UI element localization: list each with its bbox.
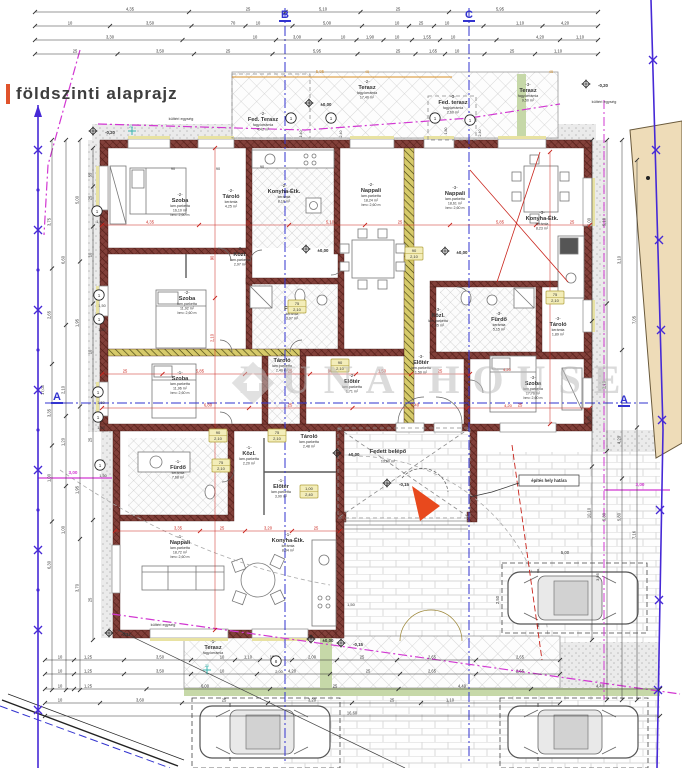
room-material: kerámia xyxy=(493,323,506,327)
dim-label: 25 xyxy=(220,525,225,530)
room-unit-number: -2- xyxy=(368,182,374,187)
dim-label: 25 xyxy=(87,597,92,602)
porch-pillar-left xyxy=(336,512,346,522)
dim-label: kültéri egység xyxy=(151,622,176,627)
dim-label: 2,10 xyxy=(209,333,214,342)
room-material: kerámia xyxy=(536,222,549,226)
room-area: 1,89 m² xyxy=(552,333,565,337)
title-text: földszinti alaprajz xyxy=(16,84,178,104)
section-marker-letter: A xyxy=(620,394,628,406)
dim-label: 16,60 xyxy=(347,710,358,715)
dim-label: 25 xyxy=(390,697,395,702)
gravel-bottom-right xyxy=(560,638,660,688)
room-unit-number: -2- xyxy=(237,246,243,251)
dim-label: építés hely határa xyxy=(531,478,567,483)
room-height: bm= 2,60 m xyxy=(523,396,542,400)
dim-label: 1,90 xyxy=(366,34,375,39)
window-tag-number: 1 xyxy=(290,116,293,121)
room-unit-number: -1- xyxy=(246,445,252,450)
door-height: 2,40 xyxy=(305,492,314,497)
dim-label: 25 xyxy=(87,437,92,442)
window-tag-number: 1 xyxy=(96,209,99,214)
room-material: lam.parketta xyxy=(170,546,190,550)
dim-label: 1,00 xyxy=(46,473,51,482)
dim-label: 3,30 xyxy=(106,34,115,39)
dim-label: 1,10 xyxy=(244,654,253,659)
dim-label: 1,00 xyxy=(60,525,65,534)
dim-label: 2,10 xyxy=(601,380,606,389)
door-height: 2,10 xyxy=(551,298,560,303)
boundary-point xyxy=(646,176,650,180)
dim-label: 1,55 xyxy=(423,34,432,39)
dim-label: kültéri egység xyxy=(169,116,194,121)
dim-label: 10 xyxy=(395,34,400,39)
room-area: 9,50 m² xyxy=(522,99,535,103)
room-material: lam.parketta xyxy=(523,387,543,391)
room-unit-number: -2- xyxy=(279,352,285,357)
room-material: fagy.kerámia xyxy=(253,123,273,127)
dim-label: 3,95 xyxy=(595,572,600,581)
dim-label: 10 xyxy=(220,668,225,673)
room-name: Fedett belépő xyxy=(370,449,407,455)
window-tag-number: 1 xyxy=(434,116,437,121)
room-area: 1,71 m² xyxy=(346,390,359,394)
room-unit-number: -3- xyxy=(450,94,456,99)
window-tag-number: 1 xyxy=(99,463,102,468)
dim-label: 25 xyxy=(314,525,319,530)
dim-label: 6,80 xyxy=(204,402,213,407)
room-unit-number: -3- xyxy=(496,311,502,316)
dim-label: 1,95 xyxy=(586,415,591,424)
room-material: lam.parketta xyxy=(239,457,259,461)
dim-label: 6,40 xyxy=(411,402,420,407)
room-material: lam.parketta xyxy=(177,302,197,306)
dim-label: 5,95 xyxy=(313,48,322,53)
room-material: lam.parketta xyxy=(272,364,292,368)
elevation-value: -0,15 xyxy=(353,642,364,647)
room-name: Konyha-Étk. xyxy=(268,187,301,195)
dim-label: 2,65 xyxy=(46,310,51,319)
dim-label: 10 xyxy=(87,252,92,257)
room-unit-number: -1- xyxy=(210,639,216,644)
boundary-magenta-topleft xyxy=(44,50,80,235)
title-accent-bar xyxy=(6,84,10,104)
room-area: 16,10 m² xyxy=(173,209,188,213)
dim-label: 25 xyxy=(419,20,424,25)
dim-label: 70 xyxy=(231,20,236,25)
dim-label: 5,80 xyxy=(601,512,606,521)
fence-left xyxy=(34,105,42,768)
window-tag-number: 1 xyxy=(98,317,101,322)
room-area: 8,10 m² xyxy=(278,200,291,204)
dim-label: 20 xyxy=(205,664,209,668)
dim-label: 25 xyxy=(398,219,403,224)
dim-label: 4,40 xyxy=(596,683,605,688)
dim-label: 10 xyxy=(253,34,258,39)
section-marker-letter: C xyxy=(465,9,473,21)
dim-label: 10,10 xyxy=(586,507,591,518)
dim-label: 25 xyxy=(396,6,401,11)
dim-label: 10 xyxy=(58,697,63,702)
room-unit-number: -2- xyxy=(260,111,266,116)
room-unit-number: -1- xyxy=(175,459,181,464)
dim-label: 5,10 xyxy=(319,6,328,11)
window-tag-number: 1 xyxy=(97,390,100,395)
room-area: 4,42 m² xyxy=(257,128,270,132)
dim-label: 25 xyxy=(396,48,401,53)
room-height: bm= 2,60 m xyxy=(361,203,380,207)
window-tag-dim: 1,50 xyxy=(96,220,103,224)
dim-label: 5,10 xyxy=(326,219,335,224)
window-tag-number: 1 xyxy=(330,116,333,121)
room-material: kerámia xyxy=(172,471,185,475)
dim-label: 25 xyxy=(570,219,575,224)
room-material: lam.parketta xyxy=(361,194,381,198)
dim-label: 25 xyxy=(360,654,365,659)
room-material: lam.parketta xyxy=(230,258,250,262)
door-width: 75 xyxy=(553,292,558,297)
dim-label: 7,16 xyxy=(631,530,636,539)
dim-label: 1,80 xyxy=(444,128,448,135)
dim-label: 45 xyxy=(365,69,370,74)
dim-label: 6,30 xyxy=(46,560,51,569)
party-wall xyxy=(404,148,414,431)
window-tag-number: 1 xyxy=(97,415,100,420)
room-material: lam.parketta xyxy=(271,490,291,494)
dim-label: 3,00 xyxy=(636,482,645,487)
dim-label: 3,10 xyxy=(616,255,621,264)
room-height: bm= 2,60 m xyxy=(170,555,189,559)
terrace-bottom xyxy=(184,636,560,688)
room-material: fagy.kerámia xyxy=(443,106,463,110)
door-width: 75 xyxy=(295,301,300,306)
elevation-value: ±0,00 xyxy=(323,638,335,643)
room-unit-number: -3- xyxy=(435,307,441,312)
floor-plan-drawing: 4,35255,10255,95103,5070105,001025101,10… xyxy=(0,0,682,768)
dim-label: 25 xyxy=(366,668,371,673)
dim-label: 10 xyxy=(58,683,63,688)
room-material: lam.parketta xyxy=(299,440,319,444)
window-tag-dim: 1,50 xyxy=(97,426,104,430)
dim-label: 3,00 xyxy=(69,470,78,475)
dim-label: 90 xyxy=(260,165,264,169)
dim-label: 55 xyxy=(87,172,92,177)
dim-label: 25 xyxy=(438,368,443,373)
dim-label: 25 xyxy=(518,402,523,407)
elevation-value: ±0,00 xyxy=(349,452,361,457)
street-edge xyxy=(0,694,184,768)
dim-label: 2,00 xyxy=(308,654,317,659)
room-unit-number: -3- xyxy=(555,316,561,321)
dim-label: 5,80 xyxy=(616,512,621,521)
dim-label: 1,25 xyxy=(84,654,93,659)
elevation-value: -0,15 xyxy=(399,482,410,487)
dim-label: 3,50 xyxy=(156,48,165,53)
room-unit-number: -2- xyxy=(184,290,190,295)
room-name: Konyha-Étk. xyxy=(272,536,305,544)
elevation-value: ±0,00 xyxy=(457,250,469,255)
dim-label: 7,05 xyxy=(631,315,636,324)
room-area: 17,76 m² xyxy=(526,392,541,396)
dim-label: 10 xyxy=(341,34,346,39)
room-name: Konyha-Étk. xyxy=(526,214,559,222)
dim-label: 3,70 xyxy=(74,583,79,592)
dim-label: 25 xyxy=(222,697,227,702)
room-area: 1,85 m² xyxy=(432,324,445,328)
dim-label: 1,25 xyxy=(84,668,93,673)
elevation-value: -0,17 xyxy=(121,632,132,637)
dim-label: 4,35 xyxy=(146,219,155,224)
dim-label: 5,10 xyxy=(601,217,606,226)
room-height: bm= 2,60 m xyxy=(170,391,189,395)
dim-label: 4,20 xyxy=(504,403,513,408)
door-width: 75 xyxy=(275,430,280,435)
elevation-value: -0,20 xyxy=(105,130,116,135)
dim-label: 5,85 xyxy=(496,219,505,224)
dim-label: 10 xyxy=(451,34,456,39)
dim-label: 90 xyxy=(171,167,175,171)
dim-label: 2,65 xyxy=(428,654,437,659)
dim-label: 10 xyxy=(455,48,460,53)
dim-label: 4,20 xyxy=(288,668,297,673)
dim-label: 1,10 xyxy=(446,697,455,702)
room-area: 13,60 m² xyxy=(381,460,396,464)
room-unit-number: -2- xyxy=(364,79,370,84)
room-material: kerámia xyxy=(552,328,565,332)
door-height: 2,10 xyxy=(217,466,226,471)
dim-label: kültéri egység xyxy=(592,99,617,104)
dim-label: 3,35 xyxy=(46,408,51,417)
room-material: lam.parketta xyxy=(170,204,190,208)
room-unit-number: -2- xyxy=(281,183,287,188)
room-area: 2,48 m² xyxy=(303,445,316,449)
dim-label: 1,10 xyxy=(554,48,563,53)
door-width: 1,00 xyxy=(305,486,314,491)
room-material: lam.parketta xyxy=(411,366,431,370)
room-unit-number: -3- xyxy=(539,210,545,215)
room-material: lam.parketta xyxy=(170,382,190,386)
dim-label: 5,95 xyxy=(496,6,505,11)
dim-label: 2,65 xyxy=(516,668,525,673)
room-material: fagy.kerámia xyxy=(357,91,377,95)
dim-label: 5,85 xyxy=(196,368,205,373)
door-height: 2,10 xyxy=(293,307,302,312)
dim-label: 5,00 xyxy=(561,550,570,555)
door-width: 75 xyxy=(219,460,224,465)
dim-label: 3,35 xyxy=(174,525,183,530)
dim-label: 45 xyxy=(549,69,554,74)
door-height: 2,10 xyxy=(214,436,223,441)
window-tag-number: 1 xyxy=(469,118,472,123)
room-unit-number: -2- xyxy=(177,192,183,197)
dim-label: 4,40 xyxy=(458,683,467,688)
dim-label: 25 xyxy=(333,683,338,688)
room-material: kerámia xyxy=(225,200,238,204)
room-height: bm= 2,60 m xyxy=(445,206,464,210)
dim-label: 2,50 xyxy=(495,595,500,604)
dim-label: 4,35 xyxy=(126,6,135,11)
dim-label: 5,00 xyxy=(74,195,79,204)
dim-label: 6,00 xyxy=(201,683,210,688)
party-wall-horizontal xyxy=(108,349,300,356)
door-height: 2,10 xyxy=(273,436,282,441)
room-unit-number: -3- xyxy=(525,82,531,87)
dim-label: 1,25 xyxy=(84,683,93,688)
room-area: 17,40 m² xyxy=(360,96,375,100)
floor-plan-canvas: 4,35255,10255,95103,5070105,001025101,10… xyxy=(0,0,682,768)
room-unit-number: -1- xyxy=(177,534,183,539)
window-tag-number: 1 xyxy=(98,293,101,298)
page-title: földszinti alaprajz xyxy=(6,84,178,104)
room-area: 3,90 m² xyxy=(275,495,288,499)
dim-label: 3,20 xyxy=(308,697,317,702)
room-unit-number: -1- xyxy=(285,532,291,537)
dim-label: 25 xyxy=(87,195,92,200)
room-unit-number: -2- xyxy=(228,188,234,193)
dim-label: 2,10 xyxy=(60,385,65,394)
room-area: 2,60 m² xyxy=(447,111,460,115)
dim-label: 20 xyxy=(129,125,133,129)
room-material: fagy.kerámia xyxy=(518,94,538,98)
room-area: 2,20 m² xyxy=(243,462,256,466)
room-area: 2,97 m² xyxy=(234,263,247,267)
room-material: kerámia xyxy=(282,544,295,548)
room-height: bm= 2,60 m xyxy=(177,311,196,315)
dim-label: 5,95 xyxy=(316,69,325,74)
room-unit-number: -3- xyxy=(452,185,458,190)
door-width: 90 xyxy=(338,360,343,365)
elevation-value: ±0,00 xyxy=(321,102,333,107)
dim-label: 25 xyxy=(226,48,231,53)
room-material: lam.parketta xyxy=(342,385,362,389)
dim-label: 3,00 xyxy=(293,34,302,39)
dim-label: 2,40 xyxy=(339,131,343,138)
room-area: 1,50 m² xyxy=(415,371,428,375)
room-unit-number: -1- xyxy=(278,478,284,483)
room-area: 2,40 m² xyxy=(276,369,289,373)
terrace-top xyxy=(232,72,558,138)
dim-label: 1,95 xyxy=(74,485,79,494)
room-area: 18,24 m² xyxy=(364,199,379,203)
window-tag-number: 8 xyxy=(275,659,278,664)
dim-label: 4,20 xyxy=(503,367,512,372)
dim-label: 1,50 xyxy=(378,368,387,373)
dim-label: 2,65 xyxy=(428,668,437,673)
dim-label: 25 xyxy=(288,402,293,407)
room-area: 5,15 m² xyxy=(493,328,506,332)
dim-label: 2,40 xyxy=(478,130,482,137)
dim-label: 90 xyxy=(216,167,220,171)
dim-label: 10 xyxy=(58,668,63,673)
door-width: 90 xyxy=(216,430,221,435)
dim-label: 17,05 xyxy=(40,384,45,395)
dim-label: 6,60 xyxy=(60,255,65,264)
room-area: 18,72 m² xyxy=(173,551,188,555)
dim-label: 1,65 xyxy=(429,48,438,53)
dim-label: 3,20 xyxy=(264,525,273,530)
window-tag-dim: 1,50 xyxy=(98,328,105,332)
room-unit-number: -3- xyxy=(530,375,536,380)
room-unit-number: -2- xyxy=(349,373,355,378)
dim-label: 3,50 xyxy=(146,20,155,25)
room-unit-number: -3- xyxy=(418,354,424,359)
dim-label: 25 xyxy=(246,219,251,224)
door-height: 2,10 xyxy=(410,254,419,259)
dim-label: 3,50 xyxy=(156,654,165,659)
window-tag-dim: 2,00 xyxy=(275,670,282,674)
dim-label: 25 xyxy=(123,368,128,373)
dim-label: 10 xyxy=(256,20,261,25)
dim-label: 10 xyxy=(395,20,400,25)
dim-label: 1,50 xyxy=(347,602,356,607)
dim-label: 10 xyxy=(68,20,73,25)
dim-label: 5,00 xyxy=(323,20,332,25)
dim-label: 25 xyxy=(510,48,515,53)
dim-label: 3,50 xyxy=(156,668,165,673)
dim-label: 10 xyxy=(220,654,225,659)
room-area: 8,23 m² xyxy=(536,227,549,231)
room-area: 3,97 m² xyxy=(286,317,299,321)
room-area: 11,92 m² xyxy=(180,307,195,311)
elevation-value: ±0,00 xyxy=(318,248,330,253)
room-area: 18,61 m² xyxy=(448,202,463,206)
dim-label: 25 xyxy=(73,48,78,53)
window-tag-dim: 1,50 xyxy=(97,401,104,405)
window-tag-dim: 1,50 xyxy=(98,304,105,308)
room-area: 8,04 m² xyxy=(282,549,295,553)
room-area: 4,25 m² xyxy=(225,205,238,209)
dim-label: 25 xyxy=(246,6,251,11)
door-width: 90 xyxy=(412,248,417,253)
room-unit-number: -1- xyxy=(177,370,183,375)
dim-label: 4,20 xyxy=(616,435,621,444)
dim-label: 10 xyxy=(445,20,450,25)
dim-label: 3,75 xyxy=(46,217,51,226)
dim-label: 3,60 xyxy=(136,697,145,702)
dim-label: 1,10 xyxy=(576,34,585,39)
room-material: lam.parketta xyxy=(445,197,465,201)
dim-label: 1,40 xyxy=(299,131,303,138)
dim-label: 10 xyxy=(87,349,92,354)
room-area: 7,68 m² xyxy=(172,476,185,480)
dim-label: 10 xyxy=(58,654,63,659)
dim-label: 1,20 xyxy=(60,437,65,446)
dim-label: 1,10 xyxy=(516,20,525,25)
dim-label: 2,65 xyxy=(516,654,525,659)
dim-label: 4,20 xyxy=(561,20,570,25)
dim-label: 1,95 xyxy=(74,318,79,327)
room-unit-number: -1- xyxy=(306,428,312,433)
room-material: kerámia xyxy=(278,195,291,199)
dim-label: 4,20 xyxy=(536,34,545,39)
door-height: 2,10 xyxy=(336,366,345,371)
elevation-value: -0,20 xyxy=(598,83,609,88)
dim-label: 25 xyxy=(288,368,293,373)
room-area: 11,96 m² xyxy=(173,387,188,391)
dim-label: 90 xyxy=(209,255,214,260)
room-material: fagy.kerámia xyxy=(203,651,223,655)
section-marker-letter: A xyxy=(53,391,61,403)
section-marker-letter: B xyxy=(281,9,289,21)
room-height: bm= 2,60 m xyxy=(170,213,189,217)
room-material: lam.parketta xyxy=(428,319,448,323)
window-tag-dim: 1,50 xyxy=(99,474,106,478)
